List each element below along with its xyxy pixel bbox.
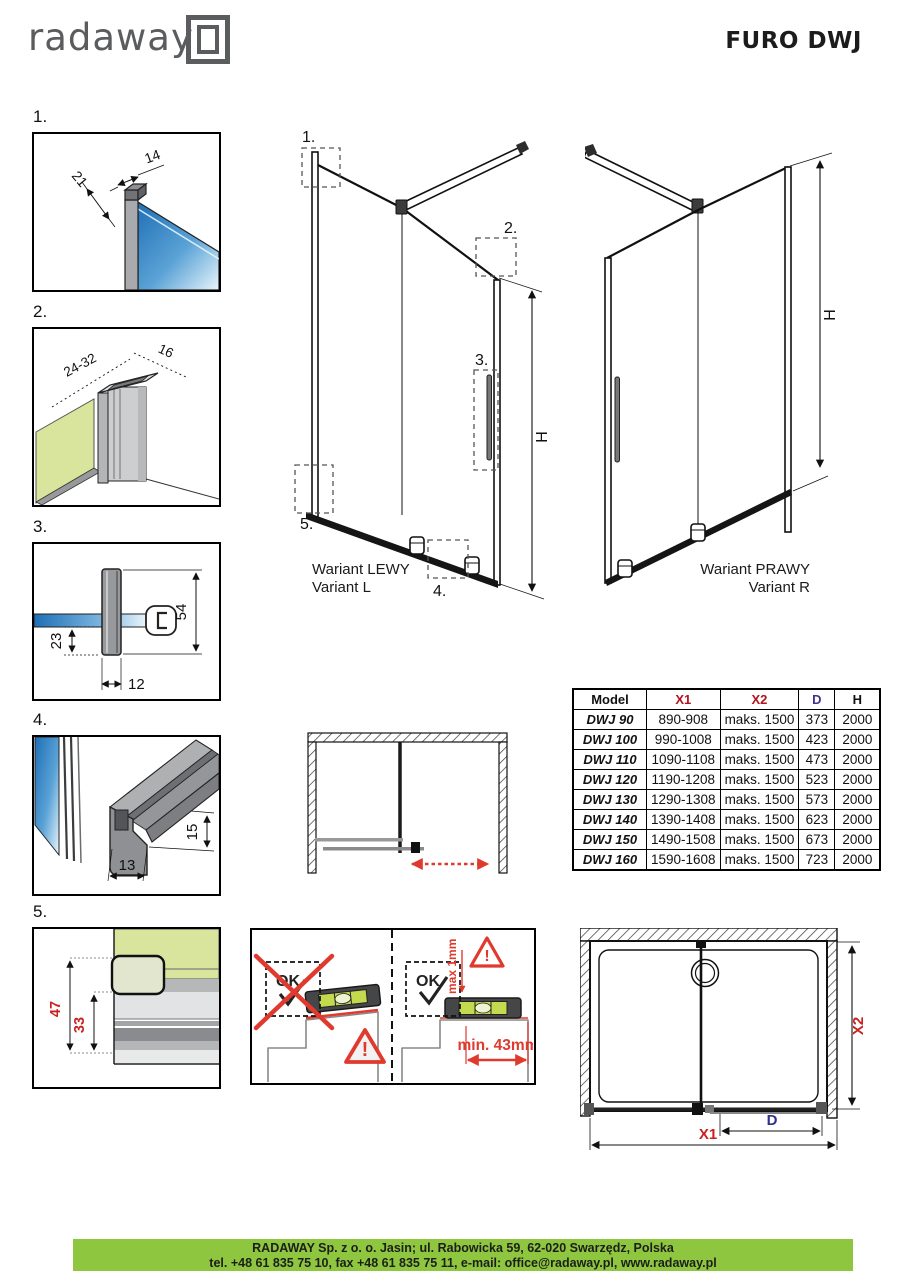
rail-bracket	[396, 200, 407, 214]
layer-stack	[112, 929, 219, 1064]
wall-top	[308, 733, 507, 742]
bottom-rail-profile-diagram: 15 13	[34, 737, 219, 894]
detail-box-5: 47 33	[32, 927, 221, 1089]
detail-box-4: 15 13	[32, 735, 221, 896]
door-stopper	[411, 842, 420, 853]
footer-bar: RADAWAY Sp. z o. o. Jasin; ul. Rabowicka…	[73, 1239, 853, 1271]
table-cell: 2000	[835, 710, 881, 730]
dim-D: D	[720, 1112, 822, 1136]
callout-2: 2.	[504, 220, 517, 237]
table-header-d: D	[799, 689, 835, 710]
table-cell: 2000	[835, 770, 881, 790]
leveling-correct-panel: OK max 1mm ! min. 43mm	[402, 938, 533, 1082]
table-cell: 990-1008	[647, 730, 721, 750]
svg-text:24-32: 24-32	[61, 350, 99, 379]
page-title: FURO DWJ	[725, 28, 862, 54]
table-cell: maks. 1500	[720, 790, 799, 810]
table-header-model: Model	[573, 689, 647, 710]
table-cell: 2000	[835, 810, 881, 830]
svg-text:X2: X2	[850, 1017, 865, 1035]
detail-box-1: 14 21	[32, 132, 221, 292]
variant-left-diagram: H 1. 2. 3. 4. 5.	[280, 125, 560, 610]
variant-right-title: Wariant PRAWY Variant R	[698, 561, 810, 597]
svg-text:21: 21	[69, 168, 91, 190]
top-rail	[585, 150, 697, 211]
table-model-cell: DWJ 90	[573, 710, 647, 730]
door-rail	[323, 847, 424, 851]
table-cell: 1490-1508	[647, 830, 721, 850]
svg-text:33: 33	[72, 1017, 88, 1033]
svg-text:!: !	[362, 1039, 369, 1061]
table-row: DWJ 1101090-1108maks. 15004732000	[573, 750, 880, 770]
mounting-clip	[112, 956, 164, 994]
wall-top	[580, 928, 837, 941]
roller	[410, 537, 424, 554]
callout-5: 5.	[300, 516, 313, 533]
svg-text:16: 16	[156, 341, 176, 361]
svg-text:!: !	[484, 948, 489, 965]
table-row: DWJ 1401390-1408maks. 15006232000	[573, 810, 880, 830]
table-model-cell: DWJ 130	[573, 790, 647, 810]
plan-view-diagram: X2 D X1	[580, 928, 865, 1153]
table-cell: 673	[799, 830, 835, 850]
table-cell: 573	[799, 790, 835, 810]
wall-right	[499, 742, 507, 873]
max-gap-label: max 1mm	[445, 939, 459, 994]
radaway-logo-square-icon	[186, 15, 230, 64]
table-cell: 890-908	[647, 710, 721, 730]
table-row: DWJ 100990-1008maks. 15004232000	[573, 730, 880, 750]
table-model-cell: DWJ 160	[573, 850, 647, 871]
table-cell: 2000	[835, 790, 881, 810]
warning-triangle-icon: !	[471, 938, 503, 966]
variant-left-title: Wariant LEWY Variant L	[312, 561, 410, 597]
table-cell: 523	[799, 770, 835, 790]
table-cell: 2000	[835, 730, 881, 750]
roller	[465, 557, 479, 574]
door-edge-profile	[605, 258, 611, 583]
wall-profile-iso-diagram: 24-32 16	[34, 329, 219, 505]
roller	[618, 560, 632, 577]
svg-text:54: 54	[173, 604, 190, 621]
table-cell: 1390-1408	[647, 810, 721, 830]
svg-text:23: 23	[48, 633, 65, 650]
page: { "header": { "logo_text": "radaway", "t…	[0, 0, 906, 1280]
footer-address: RADAWAY Sp. z o. o. Jasin; ul. Rabowicka…	[73, 1239, 853, 1256]
wall-profile-top-diagram: 14 21	[34, 134, 219, 290]
door-edge-profile	[494, 280, 500, 585]
table-row: DWJ 1501490-1508maks. 15006732000	[573, 830, 880, 850]
svg-text:14: 14	[142, 146, 162, 166]
table-cell: 1190-1208	[647, 770, 721, 790]
table-header-x2: X2	[720, 689, 799, 710]
glass-panel	[34, 614, 148, 627]
footer-contact: tel. +48 61 835 75 10, fax +48 61 835 75…	[73, 1256, 853, 1271]
table-cell: 2000	[835, 850, 881, 871]
section-label-2: 2.	[33, 302, 47, 322]
table-cell: 1590-1608	[647, 850, 721, 871]
wall-left	[308, 742, 316, 873]
dim-16: 16	[134, 341, 186, 377]
table-cell: 623	[799, 810, 835, 830]
handle-section-diagram: 54 23 12	[34, 544, 219, 699]
table-cell: 423	[799, 730, 835, 750]
table-cell: 473	[799, 750, 835, 770]
table-cell: maks. 1500	[720, 750, 799, 770]
dim-H: H	[790, 153, 839, 491]
sliding-direction-sketch	[298, 727, 513, 877]
table-row: DWJ 90890-908maks. 15003732000	[573, 710, 880, 730]
glass-panel	[138, 202, 219, 290]
table-row: DWJ 1201190-1208maks. 15005232000	[573, 770, 880, 790]
dim-47: 47	[48, 958, 114, 1053]
handle-end-cap	[146, 606, 176, 635]
spirit-level-icon	[305, 984, 381, 1013]
wall-right	[827, 941, 837, 1118]
ok-label-good: OK	[416, 973, 440, 990]
callout-1: 1.	[302, 129, 315, 146]
glass-panel	[35, 737, 59, 855]
section-label-3: 3.	[33, 517, 47, 537]
callout-4: 4.	[433, 583, 446, 600]
roller	[691, 524, 705, 541]
top-rail	[400, 148, 522, 211]
dim-33: 33	[72, 992, 114, 1050]
min-distance-label: min. 43mm	[458, 1037, 533, 1054]
svg-text:D: D	[767, 1112, 778, 1129]
table-cell: maks. 1500	[720, 710, 799, 730]
floor-section-diagram: 47 33	[34, 929, 219, 1087]
table-cell: maks. 1500	[720, 770, 799, 790]
door-handle	[615, 377, 620, 462]
section-label-5: 5.	[33, 902, 47, 922]
table-cell: maks. 1500	[720, 730, 799, 750]
spirit-level-icon	[445, 998, 521, 1018]
wall-left	[580, 941, 590, 1116]
wall-profile-bar	[125, 200, 138, 290]
radaway-logo-text: radaway	[28, 16, 194, 59]
dim-X1: X1	[590, 1118, 837, 1150]
callout-3: 3.	[475, 352, 488, 369]
table-cell: 1290-1308	[647, 790, 721, 810]
rail-extrusion	[110, 740, 219, 875]
table-cell: 1090-1108	[647, 750, 721, 770]
detail-box-3: 54 23 12	[32, 542, 221, 701]
shower-tray	[590, 941, 827, 1111]
section-label-1: 1.	[33, 107, 47, 127]
table-row: DWJ 1301290-1308maks. 15005732000	[573, 790, 880, 810]
table-cell: 2000	[835, 750, 881, 770]
spec-table: ModelX1X2DHDWJ 90890-908maks. 1500373200…	[572, 688, 881, 871]
table-model-cell: DWJ 120	[573, 770, 647, 790]
svg-text:12: 12	[128, 676, 145, 693]
wall-profile	[785, 167, 791, 532]
table-model-cell: DWJ 150	[573, 830, 647, 850]
table-model-cell: DWJ 140	[573, 810, 647, 830]
dim-21: 21	[69, 168, 115, 227]
table-cell: 723	[799, 850, 835, 871]
table-cell: maks. 1500	[720, 810, 799, 830]
table-header-h: H	[835, 689, 881, 710]
table-cell: 2000	[835, 830, 881, 850]
table-model-cell: DWJ 110	[573, 750, 647, 770]
variant-right-diagram: H	[585, 125, 885, 610]
section-label-4: 4.	[33, 710, 47, 730]
door-panel	[315, 838, 403, 842]
table-cell: 373	[799, 710, 835, 730]
leveling-instruction-box: OK ! OK max 1mm ! min. 43mm	[250, 928, 536, 1085]
table-header-x1: X1	[647, 689, 721, 710]
table-cell: maks. 1500	[720, 850, 799, 871]
svg-text:H: H	[822, 309, 839, 321]
dim-23: 23	[48, 627, 100, 655]
detail-box-2: 24-32 16	[32, 327, 221, 507]
handle-bar	[102, 569, 121, 655]
table-cell: maks. 1500	[720, 830, 799, 850]
dim-H: H	[499, 278, 551, 599]
svg-text:15: 15	[184, 824, 201, 841]
leveling-diagram: OK ! OK max 1mm ! min. 43mm	[252, 930, 533, 1082]
svg-text:47: 47	[48, 1001, 64, 1017]
table-row: DWJ 1601590-1608maks. 15007232000	[573, 850, 880, 871]
wall-profile-body	[98, 373, 158, 483]
svg-text:H: H	[534, 431, 551, 443]
leveling-wrong-panel: OK !	[256, 956, 384, 1082]
wall-profile	[312, 152, 318, 517]
door-handle	[487, 375, 492, 460]
table-model-cell: DWJ 100	[573, 730, 647, 750]
dim-12: 12	[102, 658, 145, 693]
svg-text:X1: X1	[699, 1126, 717, 1143]
svg-text:13: 13	[119, 857, 136, 874]
